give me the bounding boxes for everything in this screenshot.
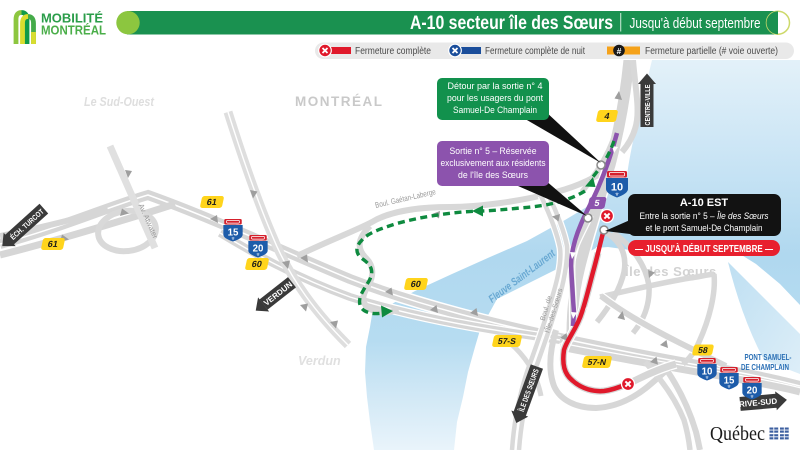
svg-text:61: 61 (206, 197, 218, 207)
svg-text:⚜: ⚜ (705, 375, 709, 380)
svg-text:#: # (617, 46, 622, 56)
svg-text:— JUSQU'À DÉBUT SEPTEMBRE —: — JUSQU'À DÉBUT SEPTEMBRE — (635, 242, 773, 255)
svg-text:Détour par la sortie n° 4: Détour par la sortie n° 4 (448, 81, 543, 92)
svg-text:57-S: 57-S (497, 336, 517, 346)
svg-text:Le Sud-Ouest: Le Sud-Ouest (84, 95, 155, 109)
svg-text:61: 61 (47, 239, 59, 249)
svg-text:pour les usagers du pont: pour les usagers du pont (447, 93, 543, 104)
svg-text:Fermeture complète de nuit: Fermeture complète de nuit (485, 46, 585, 57)
svg-text:Fermeture partielle (# voie ou: Fermeture partielle (# voie ouverte) (645, 46, 778, 57)
svg-text:Entre la sortie n° 5 – Île des: Entre la sortie n° 5 – Île des Sœurs (640, 211, 769, 222)
svg-text:MONTRÉAL: MONTRÉAL (295, 94, 384, 109)
svg-text:DE CHAMPLAIN: DE CHAMPLAIN (741, 362, 789, 372)
svg-text:Verdun: Verdun (298, 354, 341, 368)
svg-text:60: 60 (410, 279, 422, 289)
svg-text:CENTRE-VILLE: CENTRE-VILLE (643, 85, 652, 126)
svg-text:et le pont Samuel-De Champlain: et le pont Samuel-De Champlain (646, 223, 763, 234)
svg-text:PONT SAMUEL-: PONT SAMUEL- (745, 352, 792, 362)
svg-text:⚜: ⚜ (615, 192, 619, 198)
svg-text:60: 60 (251, 259, 263, 269)
svg-text:Samuel-De Champlain: Samuel-De Champlain (453, 105, 537, 116)
svg-text:Jusqu'à début septembre: Jusqu'à début septembre (630, 16, 761, 32)
svg-text:⚜: ⚜ (231, 236, 235, 241)
svg-text:Fermeture complète: Fermeture complète (355, 46, 431, 57)
svg-text:A-10 EST: A-10 EST (680, 197, 729, 209)
svg-text:exclusivement aux résidents: exclusivement aux résidents (441, 158, 546, 169)
svg-text:Sortie n° 5 – Réservée: Sortie n° 5 – Réservée (450, 146, 537, 157)
svg-text:Québec: Québec (710, 424, 765, 445)
svg-text:⚜: ⚜ (750, 394, 754, 399)
svg-text:MONTRÉAL: MONTRÉAL (41, 23, 106, 38)
svg-text:⚜: ⚜ (256, 252, 260, 257)
svg-text:57-N: 57-N (587, 357, 607, 367)
svg-text:de l'île des Sœurs: de l'île des Sœurs (458, 170, 528, 181)
svg-text:⚜: ⚜ (727, 384, 731, 389)
svg-text:A-10 secteur île des Sœurs: A-10 secteur île des Sœurs (410, 13, 613, 34)
